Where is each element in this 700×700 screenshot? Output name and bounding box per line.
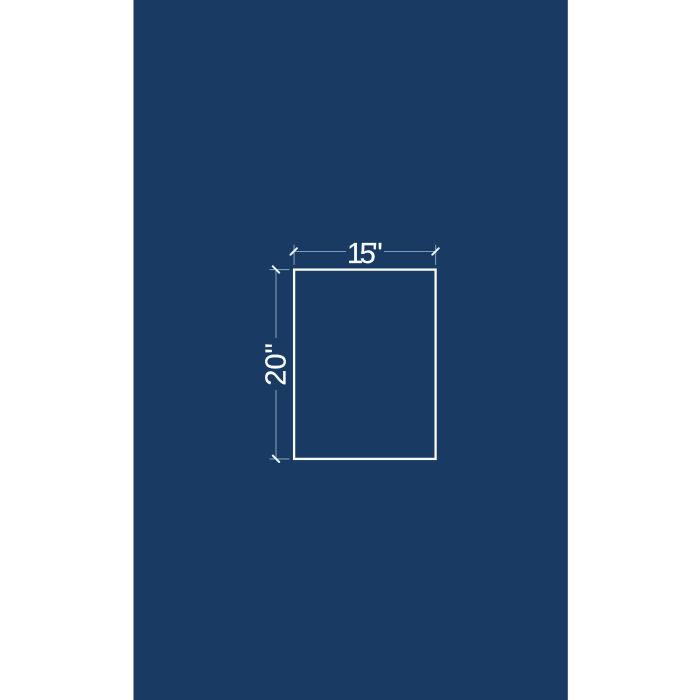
svg-text:15": 15" — [347, 238, 382, 270]
svg-text:20": 20" — [261, 343, 293, 386]
